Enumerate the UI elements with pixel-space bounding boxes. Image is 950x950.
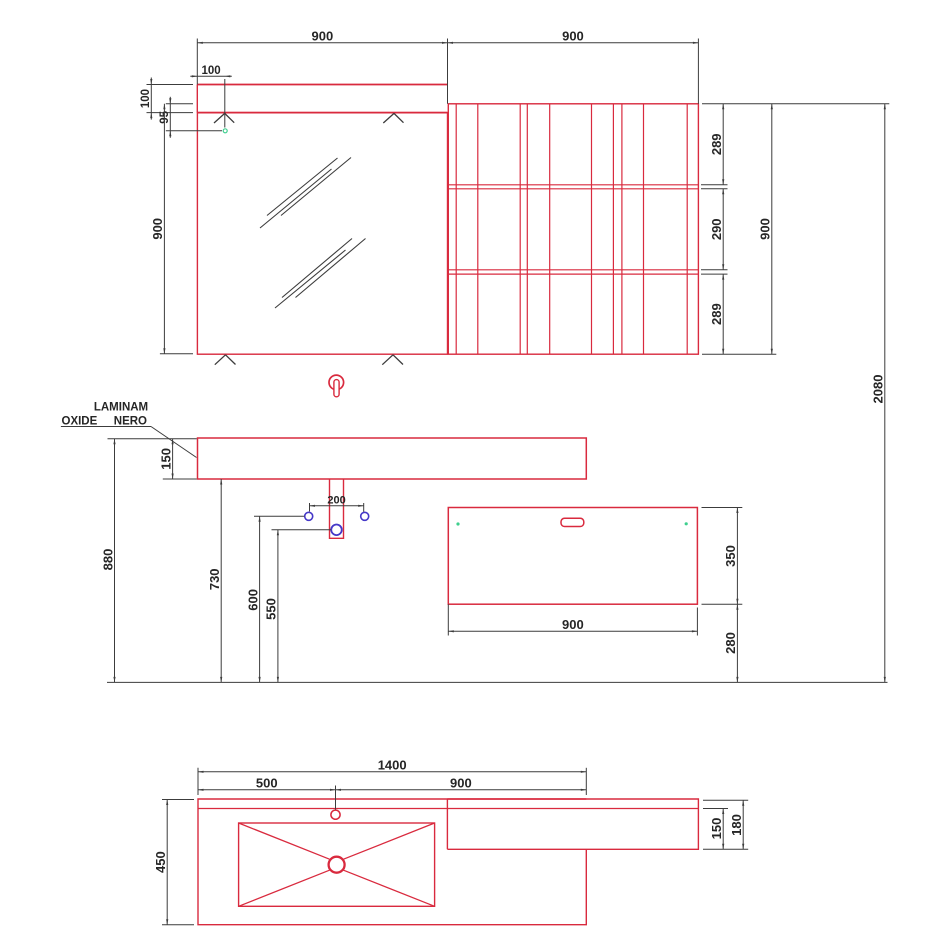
- svg-text:550: 550: [264, 598, 279, 620]
- svg-text:600: 600: [245, 589, 260, 611]
- svg-text:150: 150: [709, 818, 724, 840]
- svg-text:900: 900: [758, 218, 773, 240]
- svg-text:290: 290: [709, 218, 724, 240]
- svg-text:2080: 2080: [871, 375, 886, 404]
- svg-text:730: 730: [207, 568, 222, 590]
- svg-text:900: 900: [562, 617, 584, 632]
- svg-text:150: 150: [158, 448, 173, 470]
- svg-text:NERO: NERO: [114, 416, 147, 428]
- svg-text:180: 180: [729, 814, 744, 836]
- svg-text:900: 900: [450, 776, 472, 791]
- svg-text:500: 500: [256, 776, 278, 791]
- svg-text:100: 100: [201, 65, 220, 77]
- svg-text:900: 900: [312, 29, 334, 44]
- svg-text:900: 900: [562, 29, 584, 44]
- svg-text:900: 900: [150, 218, 165, 240]
- svg-text:LAMINAM: LAMINAM: [94, 401, 148, 413]
- svg-text:100: 100: [140, 89, 152, 108]
- svg-text:450: 450: [153, 851, 168, 873]
- svg-text:200: 200: [327, 495, 345, 507]
- svg-text:350: 350: [723, 545, 738, 567]
- svg-text:289: 289: [709, 303, 724, 325]
- svg-text:280: 280: [723, 632, 738, 654]
- svg-text:880: 880: [100, 549, 115, 571]
- svg-text:289: 289: [709, 133, 724, 155]
- svg-text:OXIDE: OXIDE: [62, 416, 98, 428]
- svg-text:1400: 1400: [378, 758, 407, 773]
- svg-text:95: 95: [159, 110, 171, 123]
